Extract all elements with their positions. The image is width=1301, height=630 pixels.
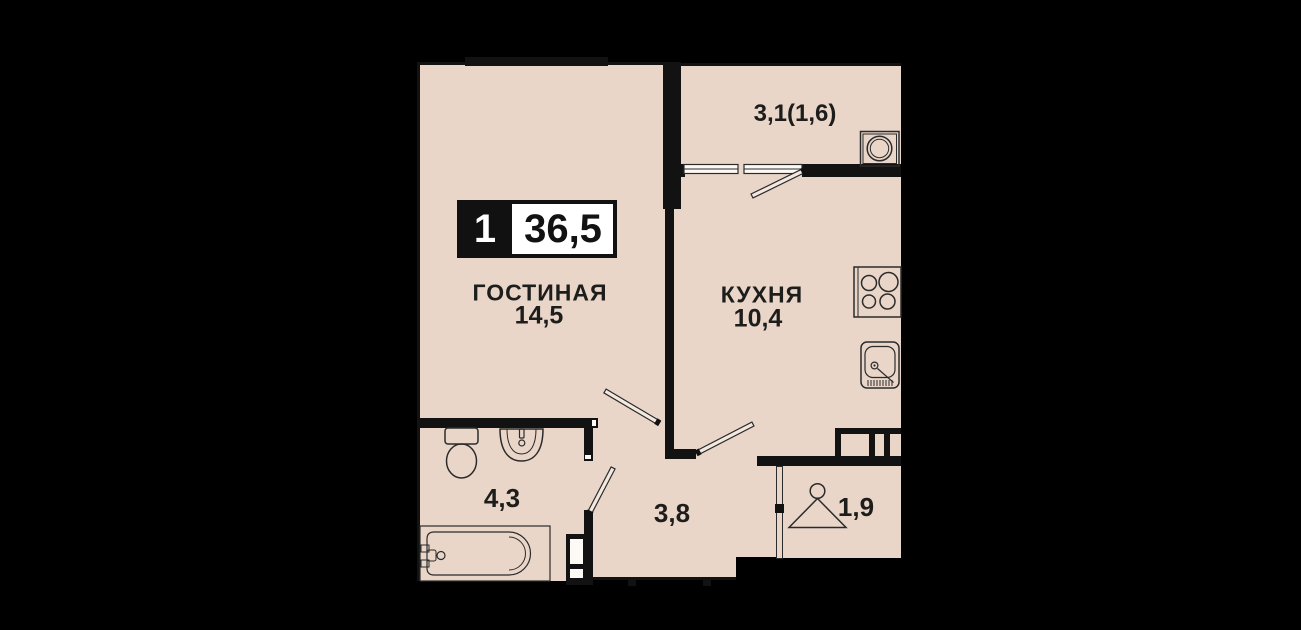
room-area-bathroom: 4,3 bbox=[484, 485, 520, 511]
door-swing-living-icon bbox=[603, 388, 661, 426]
room-area-balcony: 3,1(1,6) bbox=[754, 102, 837, 126]
bath-faucet-icon bbox=[421, 545, 445, 567]
badge-total-area: 36,5 bbox=[524, 209, 602, 249]
toilet-icon bbox=[445, 428, 478, 478]
wash-basin-icon bbox=[500, 429, 543, 461]
door-swing-kitchen-icon bbox=[695, 421, 755, 456]
room-area-wardrobe: 1,9 bbox=[838, 494, 874, 520]
room-area-living: 14,5 bbox=[515, 304, 564, 329]
door-swing-bathroom-icon bbox=[586, 466, 616, 516]
badge-rooms-count: 1 bbox=[474, 209, 496, 249]
room-area-hallway: 3,8 bbox=[654, 500, 690, 526]
kitchen-sink-icon bbox=[861, 342, 899, 388]
washing-machine-icon bbox=[861, 132, 900, 167]
window-icon bbox=[744, 165, 802, 174]
fixtures-layer bbox=[0, 0, 1301, 630]
floor-plan: 1 36,5 ГОСТИНАЯ 14,5 КУХНЯ 10,4 3,1(1,6)… bbox=[0, 0, 1301, 630]
window-icon bbox=[684, 165, 738, 174]
bathtub-icon bbox=[420, 526, 550, 581]
room-label-kitchen: КУХНЯ bbox=[721, 284, 803, 307]
room-area-kitchen: 10,4 bbox=[734, 307, 783, 332]
apartment-badge: 1 36,5 bbox=[457, 200, 617, 258]
stove-icon bbox=[854, 267, 901, 317]
